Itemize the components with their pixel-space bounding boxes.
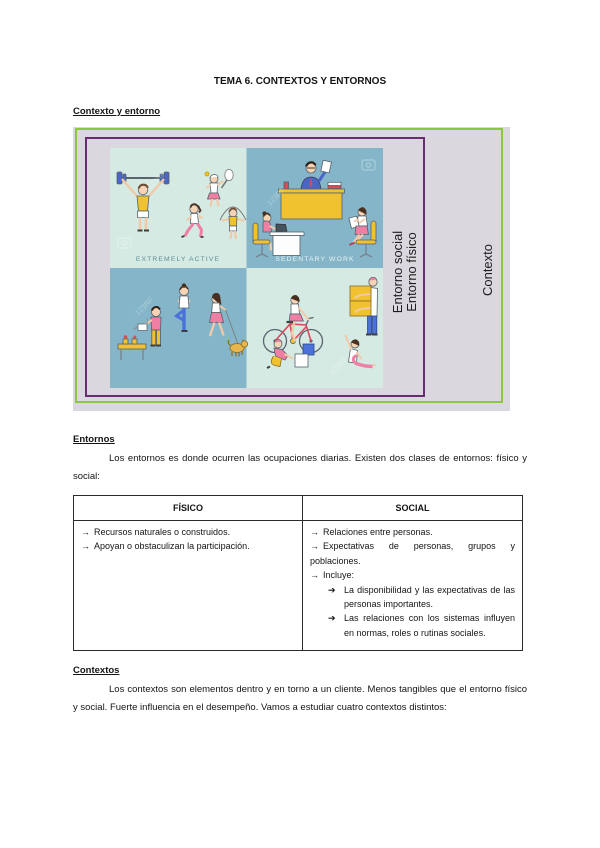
entorno-axis-labels: Entorno social Entorno físico <box>391 231 419 313</box>
activities-illustration: EXTREMELY ACTIVE <box>110 148 383 388</box>
list-item: →Recursos naturales o construidos. <box>81 525 295 539</box>
heading-contexto-y-entorno: Contexto y entorno <box>73 105 527 118</box>
arrow-bullet: → <box>81 527 90 537</box>
list-item: →Expectativas de personas, grupos y pobl… <box>310 539 515 568</box>
list-item: →Apoyan o obstaculizan la participación. <box>81 539 295 553</box>
heading-entornos: Entornos <box>73 433 527 446</box>
entorno-social-label: Entorno social <box>391 231 405 313</box>
entornos-table: FÍSICO SOCIAL →Recursos naturales o cons… <box>73 495 523 651</box>
heavy-arrow-bullet: ➔ <box>328 583 344 612</box>
sub-list-item: ➔Las relaciones con los sistemas influye… <box>328 611 515 640</box>
contexto-entorno-figure: EXTREMELY ACTIVE <box>73 127 510 411</box>
page-title: TEMA 6. CONTEXTOS Y ENTORNOS <box>73 76 527 88</box>
heavy-arrow-bullet: ➔ <box>328 611 344 640</box>
arrow-bullet: → <box>310 527 319 537</box>
header-social: SOCIAL <box>303 496 523 521</box>
arrow-bullet: → <box>81 541 90 551</box>
caption-extremely-active: EXTREMELY ACTIVE <box>136 256 220 263</box>
entornos-paragraph: Los entornos es donde ocurren las ocupac… <box>73 450 527 485</box>
contextos-paragraph: Los contextos son elementos dentro y en … <box>73 681 527 716</box>
fisico-cell: →Recursos naturales o construidos. →Apoy… <box>74 521 303 651</box>
sub-list-item: ➔La disponibilidad y las expectativas de… <box>328 583 515 612</box>
header-fisico: FÍSICO <box>74 496 303 521</box>
arrow-bullet: → <box>310 570 319 580</box>
heading-contextos: Contextos <box>73 664 527 677</box>
quadrant-extremely-active <box>110 148 247 268</box>
entorno-fisico-label: Entorno físico <box>405 231 419 313</box>
contexto-label: Contexto <box>481 244 495 296</box>
table-body-row: →Recursos naturales o construidos. →Apoy… <box>74 521 523 651</box>
list-item: →Relaciones entre personas. <box>310 525 515 539</box>
table-header-row: FÍSICO SOCIAL <box>74 496 523 521</box>
arrow-bullet: → <box>310 541 319 551</box>
list-item: →Incluye: <box>310 568 515 582</box>
caption-sedentary-work: SEDENTARY WORK <box>275 256 354 263</box>
document-page: TEMA 6. CONTEXTOS Y ENTORNOS Contexto y … <box>0 0 600 848</box>
social-cell: →Relaciones entre personas. →Expectativa… <box>303 521 523 651</box>
quadrant-leisure <box>110 268 247 388</box>
